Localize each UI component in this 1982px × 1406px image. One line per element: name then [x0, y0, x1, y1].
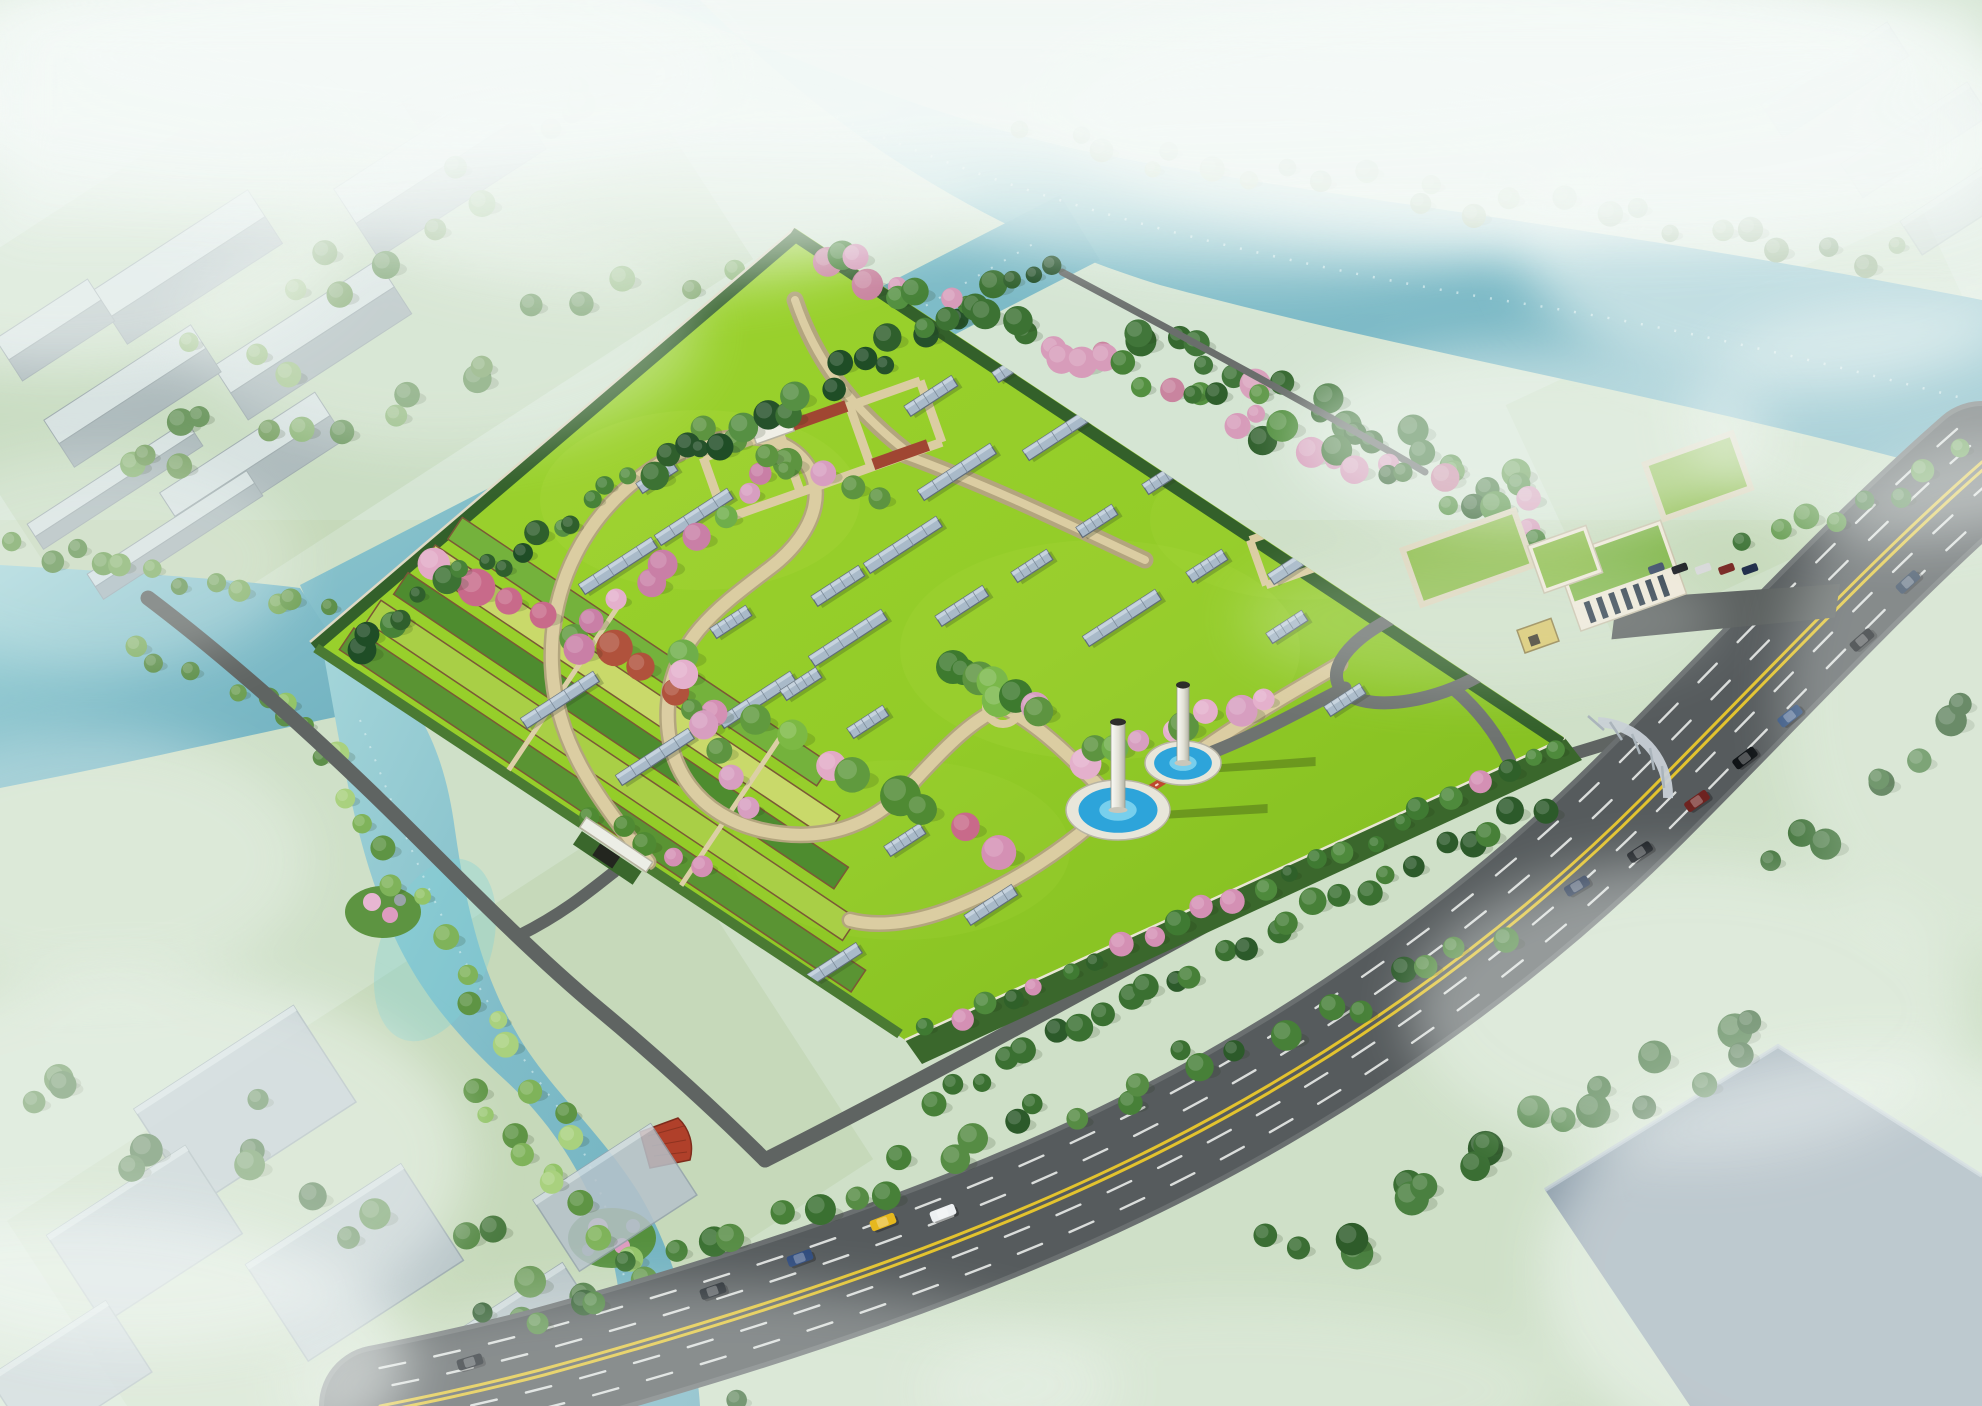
tree-highlight	[491, 1012, 501, 1022]
tree-highlight	[721, 767, 735, 781]
tree-highlight	[1162, 379, 1175, 392]
tree-highlight	[756, 402, 772, 418]
tree-highlight	[1128, 1075, 1141, 1088]
tree-highlight	[1255, 1225, 1268, 1238]
tree-highlight	[1065, 965, 1074, 974]
tree-highlight	[505, 1125, 519, 1139]
tree-highlight	[169, 410, 184, 425]
tree-highlight	[517, 1268, 535, 1286]
tree-highlight	[877, 357, 887, 367]
tree-highlight	[190, 408, 202, 420]
tree-highlight	[354, 815, 365, 826]
tree-highlight	[1227, 415, 1241, 429]
tree-highlight	[566, 636, 583, 653]
tree-highlight	[497, 589, 512, 604]
tree-highlight	[1329, 886, 1342, 899]
tree-highlight	[1222, 891, 1236, 905]
tree-highlight	[526, 522, 540, 536]
tree-highlight	[1269, 412, 1286, 429]
tree-highlight	[1191, 896, 1204, 909]
tree-highlight	[1734, 534, 1744, 544]
tree-highlight	[670, 642, 687, 659]
tree-highlight	[1047, 1020, 1060, 1033]
tree-highlight	[903, 280, 918, 295]
tree-highlight	[1088, 955, 1098, 965]
tree-highlight	[1127, 321, 1142, 336]
tree-highlight	[1228, 697, 1246, 715]
tree-highlight	[337, 790, 348, 801]
tower-top-opening	[1110, 718, 1126, 725]
tree-highlight	[1172, 1042, 1183, 1053]
tree-highlight	[1249, 406, 1259, 416]
scene-svg	[0, 0, 1982, 1406]
tree-highlight	[1257, 880, 1269, 892]
top-haze	[0, 0, 1982, 230]
tree-highlight	[570, 1192, 584, 1206]
tree-highlight	[717, 507, 730, 520]
tree-highlight	[837, 760, 857, 780]
tree-highlight	[1188, 1055, 1204, 1071]
tree-highlight	[416, 889, 425, 898]
tree-highlight	[1289, 1238, 1302, 1251]
tree-highlight	[634, 834, 647, 847]
tree-highlight	[870, 489, 882, 501]
tree-highlight	[693, 441, 703, 451]
tree-highlight	[515, 545, 526, 556]
fog-cloud	[1290, 345, 1770, 535]
tree-highlight	[411, 588, 420, 597]
tower-top-opening	[1176, 681, 1190, 688]
tree-highlight	[709, 740, 723, 754]
tree-highlight	[460, 966, 471, 977]
tree-highlight	[1378, 867, 1388, 877]
tree-highlight	[1006, 308, 1022, 324]
tree-highlight	[420, 550, 438, 568]
tree-highlight	[685, 525, 701, 541]
tree-highlight	[1135, 976, 1149, 990]
tree-highlight	[1441, 788, 1454, 801]
tree-highlight	[874, 1184, 890, 1200]
tree-highlight	[1113, 352, 1126, 365]
tree-highlight	[979, 669, 996, 686]
tree-highlight	[1548, 742, 1558, 752]
tree-highlight	[1462, 833, 1477, 848]
tree-highlight	[731, 415, 747, 431]
tree-highlight	[982, 272, 998, 288]
tree-highlight	[650, 552, 666, 568]
tree-highlight	[944, 1075, 955, 1086]
tree-highlight	[1773, 520, 1784, 531]
tree-highlight	[1274, 1022, 1291, 1039]
tree-highlight	[560, 1127, 574, 1141]
tree-highlight	[322, 600, 331, 609]
tree-highlight	[1396, 815, 1405, 824]
tree-highlight	[1093, 1004, 1106, 1017]
tree-highlight	[1255, 690, 1267, 702]
tree-highlight	[848, 1188, 861, 1201]
tree-highlight	[1068, 1110, 1080, 1122]
tree-highlight	[813, 462, 827, 476]
tree-highlight	[1012, 1039, 1026, 1053]
tree-highlight	[1068, 1016, 1083, 1031]
tree-highlight	[532, 604, 547, 619]
fog-cloud	[1240, 550, 1720, 690]
tree-highlight	[909, 796, 926, 813]
tree-highlight	[888, 1147, 902, 1161]
tree-highlight	[954, 815, 970, 831]
tree-highlight	[1250, 428, 1266, 444]
tree-highlight	[773, 1202, 786, 1215]
tree-highlight	[1369, 837, 1378, 846]
tree-highlight	[1301, 889, 1316, 904]
tree-highlight	[693, 857, 705, 869]
tree-highlight	[1005, 272, 1015, 282]
tree-highlight	[1225, 1042, 1237, 1054]
tree-highlight	[1412, 1175, 1427, 1190]
tree-highlight	[693, 417, 707, 431]
tree-highlight	[1500, 761, 1513, 774]
tree-highlight	[563, 517, 573, 527]
tree-highlight	[1207, 384, 1219, 396]
island-blossom	[382, 907, 398, 923]
tree-highlight	[1321, 996, 1336, 1011]
tree-highlight	[1405, 857, 1417, 869]
tree-highlight	[1309, 850, 1320, 861]
tree-highlight	[997, 1048, 1010, 1061]
tree-highlight	[658, 445, 671, 458]
tree-highlight	[854, 271, 871, 288]
tree-highlight	[1024, 1095, 1035, 1106]
tree-highlight	[1536, 801, 1550, 815]
tree-highlight	[373, 837, 387, 851]
tree-highlight	[677, 434, 691, 448]
tree-highlight	[495, 1034, 509, 1048]
tree-highlight	[1463, 1154, 1479, 1170]
tree-highlight	[1527, 750, 1536, 759]
tree-highlight	[581, 610, 595, 624]
tree-highlight	[1339, 1225, 1357, 1243]
tree-highlight	[392, 611, 403, 622]
tree-highlight	[1179, 967, 1192, 980]
tree-highlight	[916, 319, 927, 330]
tree-highlight	[976, 993, 989, 1006]
tree-highlight	[701, 1229, 718, 1246]
tree-highlight	[743, 706, 760, 723]
tree-highlight	[617, 1253, 628, 1264]
tree-highlight	[231, 686, 240, 695]
tree-highlight	[615, 817, 627, 829]
tree-highlight	[1498, 799, 1513, 814]
tree-highlight	[643, 464, 659, 480]
tree-highlight	[751, 464, 763, 476]
tree-highlight	[1093, 346, 1108, 361]
tree-highlight	[739, 798, 751, 810]
tree-highlight	[1790, 821, 1805, 836]
tree-highlight	[1002, 682, 1021, 701]
tree-highlight	[943, 289, 955, 301]
tree-highlight	[938, 309, 951, 322]
tree-highlight	[435, 926, 449, 940]
tree-highlight	[780, 722, 797, 739]
fog-cloud	[180, 210, 700, 450]
tree-highlight	[984, 838, 1003, 857]
tree-highlight	[455, 1224, 470, 1239]
tree-highlight	[884, 778, 906, 800]
tree-highlight	[260, 421, 272, 433]
tree-highlight	[1276, 913, 1289, 926]
tree-highlight	[1007, 1111, 1021, 1125]
tree-highlight	[843, 477, 856, 490]
tree-highlight	[1471, 772, 1484, 785]
tree-highlight	[1167, 912, 1181, 926]
tree-highlight	[1049, 346, 1066, 363]
tree-highlight	[876, 325, 892, 341]
tree-highlight	[465, 1080, 479, 1094]
tree-highlight	[667, 1241, 679, 1253]
tree-highlight	[924, 1093, 938, 1107]
tree-highlight	[960, 1125, 977, 1142]
tree-highlight	[1195, 701, 1209, 715]
tree-highlight	[974, 1075, 984, 1085]
tree-highlight	[599, 632, 619, 652]
tree-highlight	[1196, 357, 1206, 367]
tree-highlight	[830, 352, 844, 366]
tree-highlight	[778, 463, 788, 473]
tree-highlight	[718, 1226, 734, 1242]
tree-highlight	[1217, 942, 1229, 954]
tower-cylinder	[1177, 685, 1189, 763]
tree-highlight	[557, 1104, 569, 1116]
tree-highlight	[856, 349, 869, 362]
tree-highlight	[1006, 991, 1017, 1002]
tree-highlight	[1393, 959, 1407, 973]
tree-highlight	[435, 567, 451, 583]
tree-highlight	[482, 1218, 497, 1233]
tree-highlight	[1478, 824, 1492, 838]
tree-highlight	[621, 469, 630, 478]
tree-highlight	[459, 993, 472, 1006]
aerial-render-canvas: Aerial rendering of a riverside green-ro…	[0, 0, 1982, 1406]
tree-highlight	[819, 753, 836, 770]
tree-highlight	[520, 1081, 533, 1094]
tree-highlight	[513, 1145, 526, 1158]
tree-highlight	[588, 1227, 602, 1241]
tree-highlight	[452, 561, 462, 571]
tree-highlight	[824, 379, 837, 392]
tree-highlight	[943, 1147, 959, 1163]
tree-highlight	[497, 561, 507, 571]
tree-highlight	[666, 849, 676, 859]
tree-highlight	[1352, 1002, 1365, 1015]
tree-highlight	[1475, 1134, 1489, 1148]
tree-highlight	[629, 655, 645, 671]
tree-highlight	[1282, 866, 1291, 875]
tree-highlight	[1069, 349, 1086, 366]
tree-highlight	[953, 1010, 965, 1022]
tree-highlight	[1111, 934, 1125, 948]
tree-highlight	[597, 477, 607, 487]
tree-highlight	[1762, 852, 1773, 863]
tree-highlight	[1147, 928, 1158, 939]
tree-highlight	[1129, 732, 1141, 744]
tree-highlight	[481, 555, 490, 564]
tree-highlight	[1360, 882, 1374, 896]
tree-highlight	[607, 590, 619, 602]
tree-highlight	[1026, 980, 1035, 989]
tree-highlight	[671, 662, 687, 678]
tree-highlight	[683, 700, 695, 712]
tree-highlight	[888, 288, 901, 301]
tree-highlight	[709, 435, 724, 450]
tree-highlight	[1133, 378, 1144, 389]
tower-cylinder	[1111, 722, 1125, 810]
tree-highlight	[1408, 799, 1421, 812]
tree-highlight	[808, 1196, 825, 1213]
tree-highlight	[741, 484, 753, 496]
tree-highlight	[1027, 268, 1036, 277]
tree-highlight	[757, 446, 770, 459]
tree-highlight	[1333, 843, 1345, 855]
tree-highlight	[917, 1019, 927, 1029]
tree-highlight	[1185, 387, 1195, 397]
tree-highlight	[1084, 737, 1099, 752]
tree-highlight	[1438, 833, 1450, 845]
tree-highlight	[1237, 939, 1250, 952]
tree-highlight	[973, 301, 990, 318]
tree-highlight	[783, 384, 799, 400]
tree-highlight	[1026, 699, 1042, 715]
tree-highlight	[381, 876, 393, 888]
tree-highlight	[1251, 386, 1262, 397]
tree-highlight	[479, 1108, 488, 1117]
tree-highlight	[692, 712, 708, 728]
tree-highlight	[585, 492, 595, 502]
tree-highlight	[542, 1172, 555, 1185]
tower-base	[1109, 807, 1128, 813]
tree-highlight	[183, 663, 193, 673]
island-blossom	[363, 893, 381, 911]
tree-highlight	[357, 624, 371, 638]
island-rock	[394, 894, 406, 906]
tower-base	[1175, 760, 1192, 766]
